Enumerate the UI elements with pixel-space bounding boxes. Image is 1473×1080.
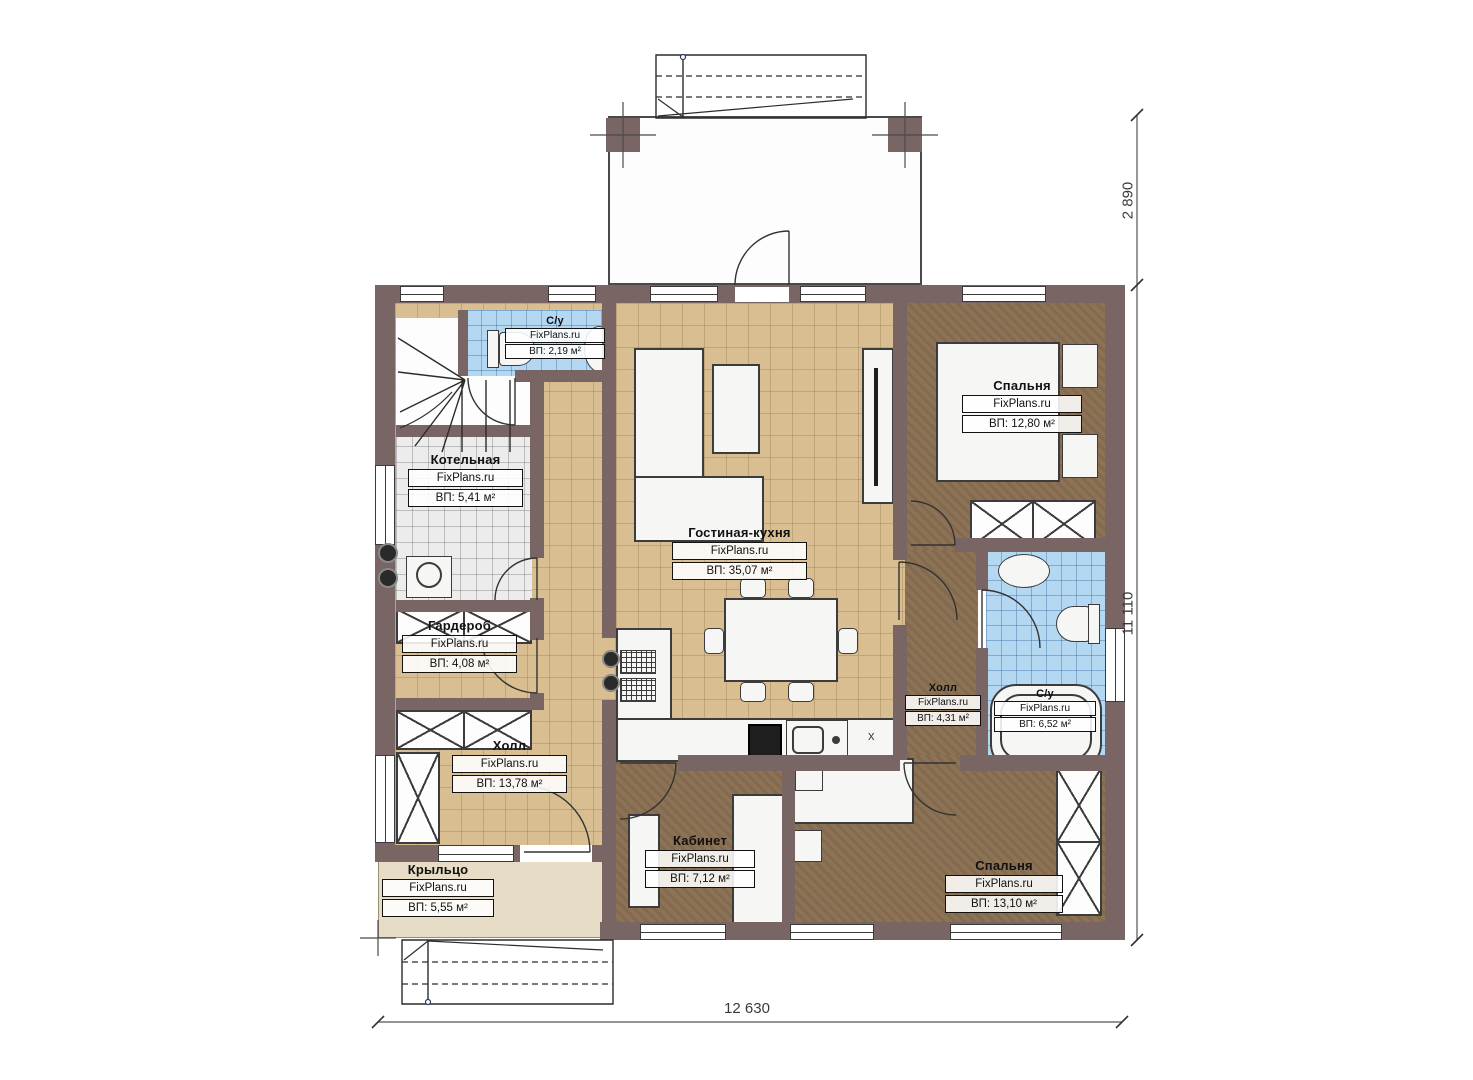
room-area: ВП: 13,10 м² <box>945 895 1063 913</box>
door-arc <box>495 558 537 600</box>
dimension-house-depth: 11 110 <box>1120 584 1137 644</box>
brand-tag: FixPlans.ru <box>645 850 755 868</box>
room-label-bathroom-right: С/у FixPlans.ru ВП: 6,52 м² <box>994 688 1096 732</box>
room-name: Холл <box>452 738 567 753</box>
room-area: ВП: 5,41 м² <box>408 489 523 507</box>
door-arc <box>911 501 955 545</box>
terrace-steps-cut <box>658 99 853 117</box>
room-name: Спальня <box>945 858 1063 873</box>
room-label-bedroom-bottom: Спальня FixPlans.ru ВП: 13,10 м² <box>945 858 1063 913</box>
brand-tag: FixPlans.ru <box>452 755 567 773</box>
room-area: ВП: 6,52 м² <box>994 717 1096 732</box>
corner-crosshair <box>360 920 396 956</box>
room-label-living-kitchen: Гостиная-кухня FixPlans.ru ВП: 35,07 м² <box>672 525 807 580</box>
door-arc <box>982 590 1040 648</box>
steps-start-mark <box>426 1000 431 1005</box>
dimension-house-width: 12 630 <box>712 1000 782 1017</box>
door-arc <box>524 786 590 852</box>
brand-tag: FixPlans.ru <box>994 701 1096 716</box>
room-name: Крыльцо <box>382 862 494 877</box>
room-area: ВП: 12,80 м² <box>962 415 1082 433</box>
stairs-treads <box>398 338 510 452</box>
terrace-steps-dashed <box>656 76 866 97</box>
door-arc <box>468 378 515 425</box>
room-area: ВП: 35,07 м² <box>672 562 807 580</box>
room-area: ВП: 4,31 м² <box>905 711 981 726</box>
room-name: С/у <box>994 688 1096 700</box>
door-arc <box>904 763 956 815</box>
room-name: Кабинет <box>645 833 755 848</box>
brand-tag: FixPlans.ru <box>962 395 1082 413</box>
terrace-steps <box>656 55 866 118</box>
room-label-hall-left: Холл FixPlans.ru ВП: 13,78 м² <box>452 738 567 793</box>
floor-plan: x <box>0 0 1473 1080</box>
room-area: ВП: 4,08 м² <box>402 655 517 673</box>
room-name: С/у <box>505 315 605 327</box>
dimension-terrace-depth: 2 890 <box>1120 171 1137 231</box>
room-label-porch: Крыльцо FixPlans.ru ВП: 5,55 м² <box>382 862 494 917</box>
room-label-boiler: Котельная FixPlans.ru ВП: 5,41 м² <box>408 452 523 507</box>
brand-tag: FixPlans.ru <box>382 879 494 897</box>
brand-tag: FixPlans.ru <box>905 695 981 710</box>
brand-tag: FixPlans.ru <box>402 635 517 653</box>
post-crosshair <box>590 102 938 168</box>
porch-steps <box>402 940 613 1004</box>
door-arc <box>620 763 676 819</box>
room-label-hall-right: Холл FixPlans.ru ВП: 4,31 м² <box>905 682 981 726</box>
room-name: Спальня <box>962 378 1082 393</box>
room-name: Холл <box>905 682 981 694</box>
door-arc <box>899 562 957 620</box>
brand-tag: FixPlans.ru <box>672 542 807 560</box>
steps-start-mark <box>681 55 686 60</box>
door-arc <box>735 231 789 285</box>
room-name: Гардероб <box>402 618 517 633</box>
stairs-walkline <box>400 392 452 428</box>
room-label-bathroom-top: С/у FixPlans.ru ВП: 2,19 м² <box>505 315 605 359</box>
room-name: Котельная <box>408 452 523 467</box>
brand-tag: FixPlans.ru <box>945 875 1063 893</box>
room-label-bedroom-top: Спальня FixPlans.ru ВП: 12,80 м² <box>962 378 1082 433</box>
porch-steps-cut <box>404 941 603 960</box>
room-area: ВП: 13,78 м² <box>452 775 567 793</box>
porch-steps-dashed <box>402 962 613 984</box>
brand-tag: FixPlans.ru <box>408 469 523 487</box>
brand-tag: FixPlans.ru <box>505 328 605 343</box>
room-label-wardrobe: Гардероб FixPlans.ru ВП: 4,08 м² <box>402 618 517 673</box>
room-area: ВП: 5,55 м² <box>382 899 494 917</box>
room-name: Гостиная-кухня <box>672 525 807 540</box>
room-area: ВП: 7,12 м² <box>645 870 755 888</box>
room-area: ВП: 2,19 м² <box>505 344 605 359</box>
room-label-office: Кабинет FixPlans.ru ВП: 7,12 м² <box>645 833 755 888</box>
